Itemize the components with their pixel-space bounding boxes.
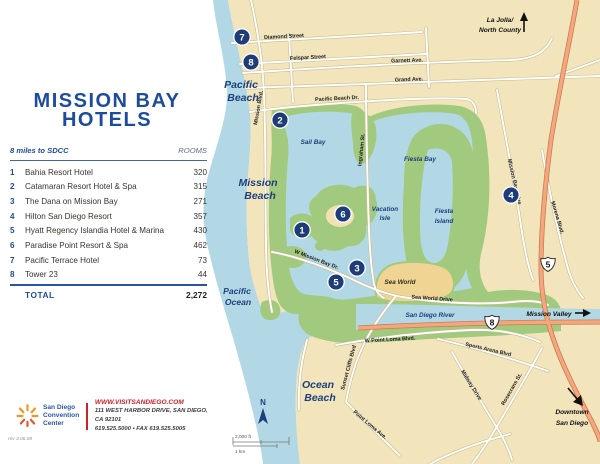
svg-text:Beach: Beach <box>304 392 336 404</box>
svg-text:Beach: Beach <box>244 190 276 202</box>
marker-7: 7 <box>234 29 250 45</box>
label-la-jolla: La Jolla/ <box>487 17 515 24</box>
total-rooms: 2,272 <box>186 290 207 300</box>
svg-text:5: 5 <box>333 277 339 288</box>
svg-text:Island: Island <box>435 218 455 225</box>
label-grand-ave: Grand Ave. <box>395 76 424 83</box>
marker-2: 2 <box>272 112 288 128</box>
svg-text:8: 8 <box>248 57 253 68</box>
svg-text:Ocean: Ocean <box>225 297 251 307</box>
marker-1: 1 <box>294 222 310 238</box>
website-link[interactable]: WWW.VISITSANDIEGO.COM <box>95 398 212 407</box>
rooms-header: ROOMS <box>178 146 207 155</box>
svg-text:3: 3 <box>354 263 359 274</box>
table-row: 1Bahia Resort Hotel320 <box>10 165 207 180</box>
page-title: MISSION BAY HOTELS <box>0 92 214 129</box>
table-row: 4Hilton San Diego Resort357 <box>10 209 207 224</box>
scale-km-label: 1 km <box>235 449 245 455</box>
table-row: 7Pacific Terrace Hotel73 <box>10 253 207 268</box>
svg-text:San Diego: San Diego <box>556 420 588 427</box>
svg-text:Beach: Beach <box>227 92 259 104</box>
marker-3: 3 <box>349 260 365 276</box>
total-label: TOTAL <box>25 290 55 300</box>
marker-4: 4 <box>503 187 519 203</box>
label-fiesta-bay: Fiesta Bay <box>404 156 436 163</box>
svg-text:North County: North County <box>479 27 521 34</box>
svg-text:1: 1 <box>299 225 305 236</box>
hotel-table: 8 miles to SDCC ROOMS 1Bahia Resort Hote… <box>10 146 207 300</box>
label-garnett-ave: Garnett Ave. <box>391 57 423 64</box>
svg-text:4: 4 <box>508 190 514 201</box>
label-sail-bay: Sail Bay <box>301 139 326 146</box>
logo-divider <box>86 403 88 430</box>
svg-text:8: 8 <box>490 318 495 328</box>
address-line: 111 WEST HARBOR DRIVE, SAN DIEGO, CA 921… <box>95 407 212 425</box>
contact-block: WWW.VISITSANDIEGO.COM 111 WEST HARBOR DR… <box>95 398 212 434</box>
svg-text:5: 5 <box>546 260 551 270</box>
svg-text:2: 2 <box>277 115 282 126</box>
scale-ft-label: 2,000 ft <box>235 434 252 440</box>
phone-line: 619.525.5000 • FAX 619.525.5005 <box>95 425 212 434</box>
marker-5: 5 <box>328 274 344 290</box>
label-mission-beach: Mission <box>238 177 277 189</box>
svg-text:7: 7 <box>239 32 244 43</box>
distance-note: 8 miles to SDCC <box>10 146 69 155</box>
marker-6: 6 <box>335 206 351 222</box>
label-mission-valley: Mission Valley <box>526 311 572 318</box>
label-sea-world: Sea World <box>384 279 416 286</box>
table-row: 6Paradise Point Resort & Spa462 <box>10 238 207 253</box>
table-row: 3The Dana on Mission Bay271 <box>10 194 207 209</box>
page: Diamond Street Felspar Street Garnett Av… <box>0 0 600 464</box>
svg-text:6: 6 <box>340 209 345 220</box>
org-name: San Diego Convention Center <box>43 404 79 427</box>
label-vacation-isle: Vacation <box>372 206 398 213</box>
svg-text:N: N <box>260 398 266 407</box>
label-downtown: Downtown <box>555 409 588 416</box>
hotel-list-panel: MISSION BAY HOTELS 8 miles to SDCC ROOMS… <box>0 0 212 464</box>
table-total-row: TOTAL 2,272 <box>10 284 207 300</box>
revision-note: rev 3.06.08 <box>8 437 32 442</box>
sdcc-logo-block: San Diego Convention Center WWW.VISITSAN… <box>15 398 212 434</box>
table-rows: 1Bahia Resort Hotel320 2Catamaran Resort… <box>10 165 207 282</box>
svg-text:Isle: Isle <box>380 215 391 222</box>
table-row: 8Tower 2344 <box>10 267 207 282</box>
table-row: 2Catamaran Resort Hotel & Spa315 <box>10 180 207 195</box>
table-row: 5Hyatt Regency Islandia Hotel & Marina43… <box>10 224 207 239</box>
marker-8: 8 <box>243 54 259 70</box>
label-pacific-ocean: Pacific <box>223 286 251 296</box>
label-pacific-beach: Pacific <box>224 79 258 91</box>
table-header: 8 miles to SDCC ROOMS <box>10 146 207 161</box>
sun-logo-icon <box>15 400 40 432</box>
label-ocean-beach: Ocean <box>302 379 334 391</box>
label-fiesta-island: Fiesta <box>435 208 454 215</box>
label-san-diego-river: San Diego River <box>405 312 455 319</box>
